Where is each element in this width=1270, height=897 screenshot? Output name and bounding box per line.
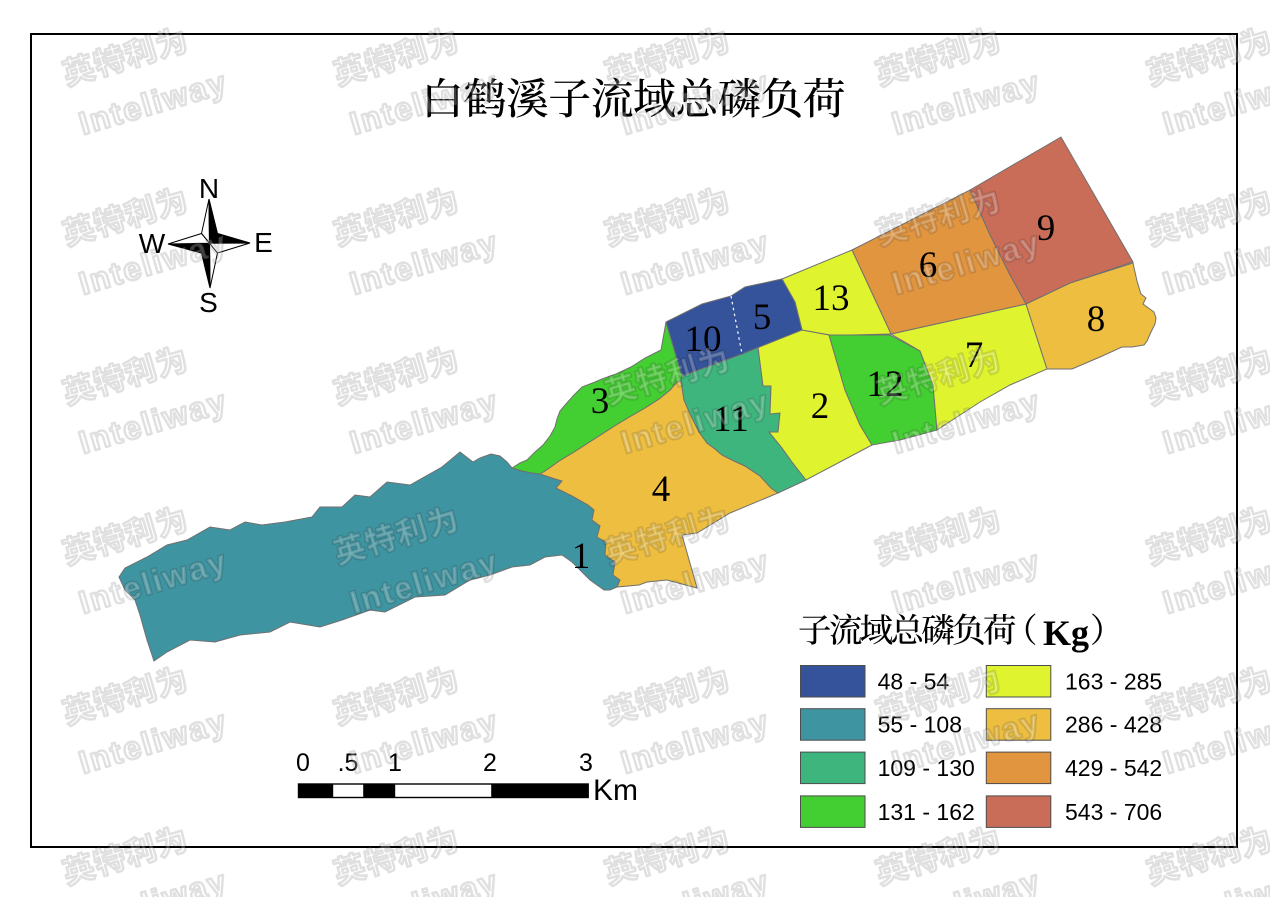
svg-text:1: 1 <box>572 536 591 577</box>
svg-text:286 - 428: 286 - 428 <box>1065 712 1162 738</box>
svg-text:5: 5 <box>753 297 772 338</box>
svg-text:E: E <box>254 227 273 258</box>
svg-text:163 - 285: 163 - 285 <box>1065 669 1162 695</box>
svg-text:2: 2 <box>811 386 830 427</box>
svg-text:3: 3 <box>591 381 610 422</box>
svg-text:2: 2 <box>483 749 497 777</box>
svg-text:0: 0 <box>296 749 310 777</box>
svg-text:N: N <box>199 173 219 204</box>
svg-text:4: 4 <box>652 469 671 510</box>
svg-text:8: 8 <box>1087 299 1106 340</box>
svg-text:3: 3 <box>579 749 593 777</box>
svg-text:Kg: Kg <box>1043 613 1089 653</box>
svg-text:429 - 542: 429 - 542 <box>1065 755 1162 781</box>
svg-text:S: S <box>199 287 218 318</box>
svg-text:13: 13 <box>813 278 850 319</box>
svg-text:543 - 706: 543 - 706 <box>1065 799 1162 825</box>
svg-text:131 - 162: 131 - 162 <box>878 799 975 825</box>
